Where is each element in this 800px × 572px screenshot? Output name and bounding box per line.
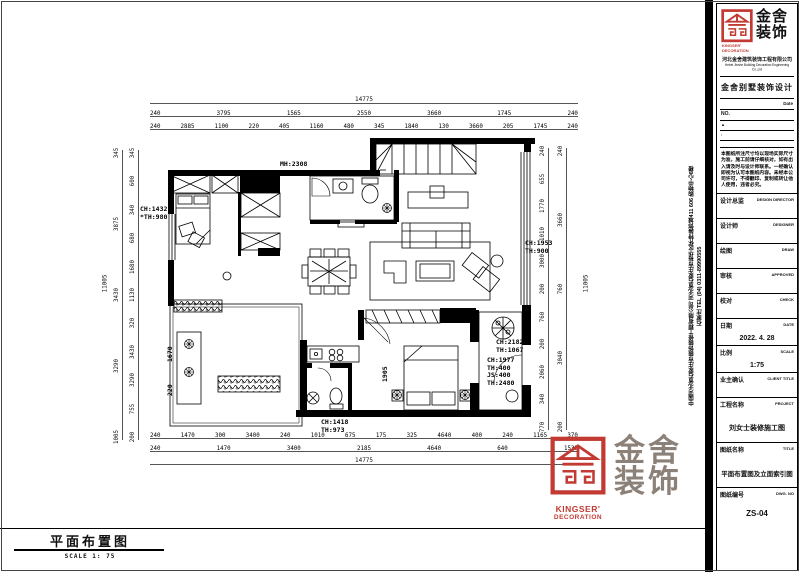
dim-value: 480 bbox=[343, 124, 353, 130]
dim-value: 175 bbox=[376, 433, 386, 439]
dim-value: 300 bbox=[215, 433, 225, 439]
dim-left-total: 11005 bbox=[102, 274, 109, 292]
field-en: TITLE bbox=[783, 446, 794, 451]
dim-bottom-total: 14775 bbox=[150, 455, 578, 465]
dim-value: 1840 bbox=[404, 124, 418, 130]
watermark-chars: 金 舍 装 饰 bbox=[614, 436, 682, 498]
dim-value: 2060 bbox=[540, 365, 546, 379]
dim-value: 1745 bbox=[533, 124, 547, 130]
dim-value: 220 bbox=[248, 124, 258, 130]
field-value: 2022. 4. 28 bbox=[720, 330, 794, 342]
dim-value: 680 bbox=[130, 233, 136, 243]
dim-value: 240 bbox=[150, 446, 160, 452]
wm-char: 装 bbox=[614, 467, 648, 498]
titleblock-company-cn: 河北金舍建筑装饰工程有限公司 bbox=[717, 57, 797, 63]
watermark-logo: KINGSER' DECORATION 金 舍 装 饰 bbox=[546, 436, 682, 521]
dim-value: 1470 bbox=[181, 433, 195, 439]
dim-top-row3: 2402885110022040511604803451840130366020… bbox=[150, 120, 578, 130]
field-value: 刘女士装修施工图 bbox=[720, 409, 794, 433]
living-room bbox=[223, 186, 503, 300]
dim-value: 240 bbox=[558, 146, 564, 156]
dim-value: 200 bbox=[130, 432, 136, 442]
dim-value: 240 bbox=[502, 433, 512, 439]
wm-char: 金 bbox=[614, 436, 648, 467]
dim-value: 3430 bbox=[130, 345, 136, 359]
drawing-scale: SCALE 1: 75 bbox=[30, 553, 150, 560]
bathroom-lower bbox=[307, 368, 343, 409]
label-ch1977: CH:1977 TH:400 JS:400 TH:2480 bbox=[487, 357, 514, 387]
titleblock-brand-chars: 金舍 装饰 bbox=[756, 9, 788, 41]
dim-value: 600 bbox=[130, 176, 136, 186]
dim-value: 3795 bbox=[217, 111, 231, 117]
dim-value: 320 bbox=[130, 318, 136, 328]
field-scale: 比例 SCALE 1:75 bbox=[717, 345, 797, 372]
field-project: 工程名称 PROJECT 刘女士装修施工图 bbox=[717, 397, 797, 442]
dim-left-inner: 3456003406801680113032034303290755200 bbox=[128, 150, 139, 440]
field-en: APPROVED bbox=[772, 272, 794, 277]
dim-value: 130 bbox=[438, 124, 448, 130]
kingser-logo-icon bbox=[549, 436, 607, 498]
field-en: DRAW bbox=[782, 247, 794, 252]
field-label: 审核 bbox=[720, 271, 732, 280]
field-draw: 绘图 DRAW bbox=[717, 243, 797, 268]
dim-value: 240 bbox=[150, 433, 160, 439]
dim-value: 3000 bbox=[540, 254, 546, 268]
dim-value: 240 bbox=[540, 146, 546, 156]
field-label: 设计师 bbox=[720, 221, 738, 230]
dim-value: 240 bbox=[567, 111, 577, 117]
bathroom-top bbox=[310, 176, 394, 227]
dim-value: 345 bbox=[130, 148, 136, 158]
dim-value: 2550 bbox=[357, 111, 371, 117]
watermark-en2: DECORATION bbox=[546, 514, 610, 521]
field-label: 图纸名称 bbox=[720, 445, 744, 454]
dim-value: 340 bbox=[540, 394, 546, 404]
dim-value: 1130 bbox=[130, 288, 136, 302]
dim-value: 325 bbox=[407, 433, 417, 439]
dim-value: 240 bbox=[280, 433, 290, 439]
dim-value: 760 bbox=[540, 311, 546, 321]
dim-top-total: 14775 bbox=[150, 94, 578, 104]
label-220: 220 bbox=[167, 384, 175, 396]
stairs bbox=[376, 144, 476, 174]
kingser-logo-icon bbox=[721, 9, 753, 44]
dim-right-mid: 24036607603040200 bbox=[556, 148, 567, 430]
dim-value: 755 bbox=[130, 403, 136, 413]
field-label: 校对 bbox=[720, 296, 732, 305]
label-ch1418: CH:1418 TH:973 bbox=[321, 419, 348, 434]
kitchen bbox=[218, 346, 359, 392]
field-label: 业主确认 bbox=[720, 375, 744, 384]
dim-value: 200 bbox=[540, 339, 546, 349]
terrace-left bbox=[170, 300, 302, 426]
dim-value: 3400 bbox=[246, 433, 260, 439]
dim-value: 2885 bbox=[181, 124, 195, 130]
dim-value: 3400 bbox=[287, 446, 301, 452]
field-label: 图纸编号 bbox=[720, 490, 744, 499]
field-en: DESIGN DIRECTOR bbox=[757, 197, 794, 202]
dim-value: 2185 bbox=[357, 446, 371, 452]
field-design-director: 设计总监 DESIGN DIRECTOR bbox=[717, 193, 797, 218]
titleblock-colon: : bbox=[717, 131, 797, 138]
dim-value: 1470 bbox=[217, 446, 231, 452]
titleblock-product: 金舍别墅装饰设计 bbox=[717, 77, 797, 96]
dim-value: 1565 bbox=[287, 111, 301, 117]
field-approved: 审核 APPROVED bbox=[717, 268, 797, 293]
label-mh2308: MH:2308 bbox=[280, 161, 307, 169]
dim-value: 3660 bbox=[558, 213, 564, 227]
field-en: SCALE bbox=[780, 349, 794, 354]
dim-value: 200 bbox=[540, 284, 546, 294]
bedroom-bottom bbox=[364, 310, 471, 410]
dim-value: 4640 bbox=[437, 433, 451, 439]
drawing-title: 平面布置图 bbox=[30, 531, 150, 550]
label-ch1432: CH:1432 *TH:980 bbox=[140, 206, 167, 221]
dim-bottom-row2: 24014703400218546406401535 bbox=[150, 442, 578, 452]
titleblock-black-bar bbox=[705, 0, 713, 572]
dim-value: 345 bbox=[114, 148, 120, 158]
field-en: DESIGNER bbox=[773, 222, 794, 227]
titleblock: 金舍 装饰 KINGSER'DECORATION 河北金舍建筑装饰工程有限公司 … bbox=[716, 3, 798, 571]
field-date: 日期 DATE 2022. 4. 28 bbox=[717, 318, 797, 345]
dim-value: 200 bbox=[558, 422, 564, 432]
field-en: PROJECT bbox=[775, 401, 794, 406]
dim-value: 1160 bbox=[309, 124, 323, 130]
dim-value: 3875 bbox=[114, 217, 120, 231]
dim-value: 3040 bbox=[558, 351, 564, 365]
watermark-en1: KINGSER' bbox=[546, 505, 610, 514]
field-label: 绘图 bbox=[720, 246, 732, 255]
dim-value: 4640 bbox=[427, 446, 441, 452]
wm-char: 舍 bbox=[648, 436, 682, 467]
label-ch1953: CH:1953 TH:900 bbox=[525, 240, 552, 255]
dim-value: 3660 bbox=[427, 111, 441, 117]
dim-value: 205 bbox=[503, 124, 513, 130]
field-value: 平面布置图及立面索引图 bbox=[720, 454, 794, 478]
field-en: CHECK bbox=[780, 297, 794, 302]
side-text-phone: 石家庄 TEL (04) 0311-89990555 bbox=[696, 246, 704, 325]
dim-right-total: 11005 bbox=[583, 274, 590, 292]
titleblock-notice: 本图纸所注尺寸均以现场实际尺寸为准，施工前请仔细核对，如有出入请及时与设计师联系… bbox=[717, 148, 797, 193]
dim-value: 400 bbox=[472, 433, 482, 439]
field-dwg-no: 图纸编号 DWG. NO ZS-04 bbox=[717, 487, 797, 526]
dim-value: 340 bbox=[130, 205, 136, 215]
dim-value: 655 bbox=[540, 173, 546, 183]
dim-value: 640 bbox=[497, 446, 507, 452]
field-sheet-title: 图纸名称 TITLE 平面布置图及立面索引图 bbox=[717, 442, 797, 487]
field-label: 工程名称 bbox=[720, 400, 744, 409]
field-value: 1:75 bbox=[720, 357, 794, 369]
label-1905: 1905 bbox=[382, 366, 390, 382]
titleblock-company-en: Hebei Jinshe Building Decoration Enginee… bbox=[721, 63, 793, 71]
dim-value: 3290 bbox=[130, 373, 136, 387]
footer-divider bbox=[0, 528, 706, 529]
dim-value: 3430 bbox=[114, 288, 120, 302]
field-label: 比例 bbox=[720, 348, 732, 357]
field-designer: 设计师 DESIGNER bbox=[717, 218, 797, 243]
dim-value: 240 bbox=[150, 111, 160, 117]
label-1670: 1670 bbox=[167, 346, 175, 362]
dim-top-row2: 24037951565255036601745240 bbox=[150, 107, 578, 117]
dim-value: 240 bbox=[567, 124, 577, 130]
dim-bottom-row1: 2401470300340024010106751753254640400240… bbox=[150, 429, 578, 439]
field-label: 日期 bbox=[720, 321, 732, 330]
field-en: DATE bbox=[783, 322, 794, 327]
titleblock-side-text: 中国河北省石家庄市装饰装修工程有限公司 河北省石家庄市裕华区怀特装饰城411 6… bbox=[688, 6, 702, 566]
drawing-sheet: 14775 24037951565255036601745240 2402885… bbox=[0, 0, 800, 572]
field-value: ZS-04 bbox=[720, 499, 794, 518]
dim-value: 3290 bbox=[114, 359, 120, 373]
dim-left-mid: 3453875343032901005 bbox=[112, 150, 123, 440]
titleblock-logo: 金舍 装饰 bbox=[717, 4, 797, 44]
bedroom-top-left bbox=[176, 194, 210, 248]
dim-value: 1745 bbox=[497, 111, 511, 117]
dim-value: 1770 bbox=[540, 199, 546, 213]
dim-value: 1680 bbox=[130, 260, 136, 274]
field-client: 业主确认 CLIENT TITLE bbox=[717, 372, 797, 397]
dim-value: 1005 bbox=[114, 430, 120, 444]
field-en: DWG. NO bbox=[776, 491, 794, 496]
wm-char: 饰 bbox=[648, 467, 682, 498]
dim-right-inner: 2406551770101030002007602002060340770 bbox=[538, 148, 549, 430]
dim-value: 760 bbox=[558, 284, 564, 294]
drawing-title-underline bbox=[14, 549, 164, 551]
dim-value: 405 bbox=[279, 124, 289, 130]
dim-value: 770 bbox=[540, 422, 546, 432]
side-text-company: 中国河北省石家庄市装饰装修工程有限公司 河北省石家庄市裕华区怀特装饰城411 6… bbox=[688, 166, 696, 406]
label-ch2182: CH:2182 TH:1067 bbox=[496, 339, 523, 354]
dim-value: 345 bbox=[374, 124, 384, 130]
dim-value: 1100 bbox=[214, 124, 228, 130]
titleblock-no-label: NO. bbox=[717, 110, 797, 118]
titleblock-brand-en: KINGSER'DECORATION bbox=[717, 44, 797, 53]
dining-set bbox=[302, 249, 356, 294]
titleblock-triangle: ▲ bbox=[717, 121, 797, 128]
titleblock-date-label: Date bbox=[717, 99, 797, 107]
dim-value: 3660 bbox=[469, 124, 483, 130]
field-check: 校对 CHECK bbox=[717, 293, 797, 318]
dim-value: 1165 bbox=[533, 433, 547, 439]
field-en: CLIENT TITLE bbox=[767, 376, 794, 381]
field-label: 设计总监 bbox=[720, 196, 744, 205]
dim-value: 240 bbox=[150, 124, 160, 130]
